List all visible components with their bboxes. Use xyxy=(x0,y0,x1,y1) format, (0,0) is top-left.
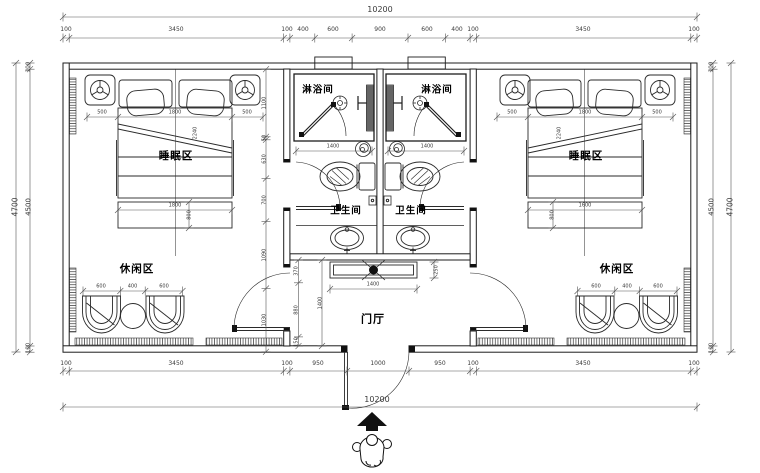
bed-right xyxy=(527,69,644,256)
bathroom-door-left xyxy=(296,162,341,211)
hall-door-left xyxy=(232,273,290,332)
hall-door-right xyxy=(470,273,528,332)
shower-room-right xyxy=(386,74,466,141)
floor-plan-drawing xyxy=(0,0,760,473)
toilet-right xyxy=(385,162,440,191)
toilet-paper-icon xyxy=(390,142,405,157)
toilet-left xyxy=(320,162,375,191)
coffee-table xyxy=(121,304,146,329)
entrance-arrow-icon xyxy=(357,412,387,431)
bathroom-door-right xyxy=(419,162,464,211)
ceiling-fan-icon xyxy=(369,266,378,275)
entrance-door xyxy=(342,352,409,410)
washbasin xyxy=(331,227,364,254)
washbasin xyxy=(397,227,430,254)
shower-room-left xyxy=(294,74,374,141)
leisure-furniture-right xyxy=(576,296,678,333)
floor-plan-canvas: 睡眠区 睡眠区 休闲区 休闲区 淋浴间 淋浴间 卫生间 卫生间 门厅 10200… xyxy=(0,0,760,473)
person-figure xyxy=(353,435,392,468)
leisure-furniture-left xyxy=(83,296,185,333)
toilet-paper-icon xyxy=(356,142,371,157)
coffee-table xyxy=(614,304,639,329)
bed-left xyxy=(117,69,234,256)
console-table xyxy=(330,260,417,280)
